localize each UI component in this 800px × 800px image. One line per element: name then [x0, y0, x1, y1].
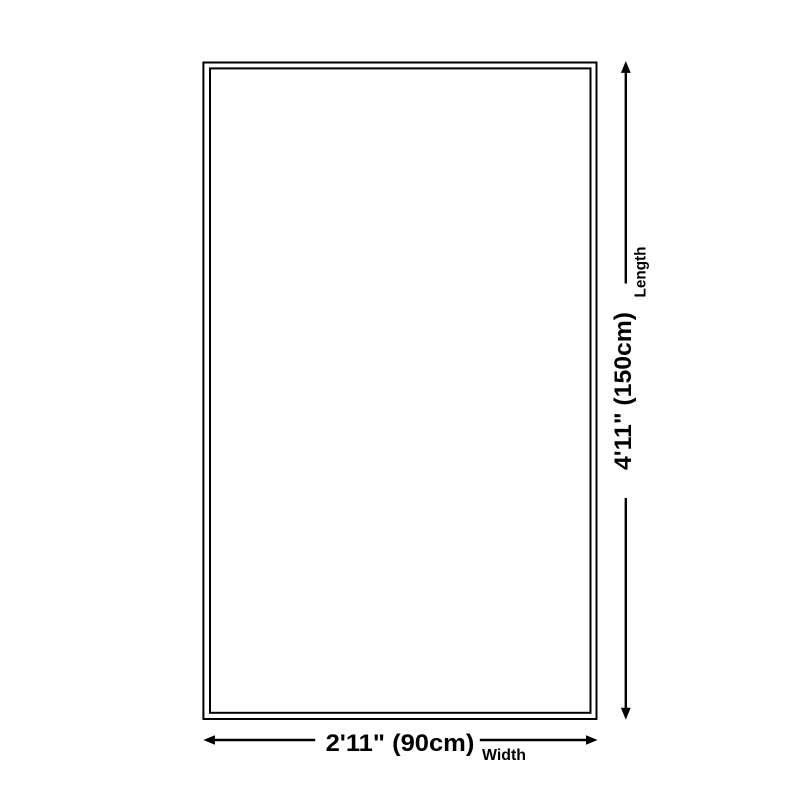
svg-text:Length: Length: [633, 247, 650, 298]
svg-text:4'11" (150cm): 4'11" (150cm): [610, 312, 637, 470]
svg-text:2'11" (90cm): 2'11" (90cm): [326, 730, 475, 757]
svg-text:Width: Width: [482, 747, 526, 764]
